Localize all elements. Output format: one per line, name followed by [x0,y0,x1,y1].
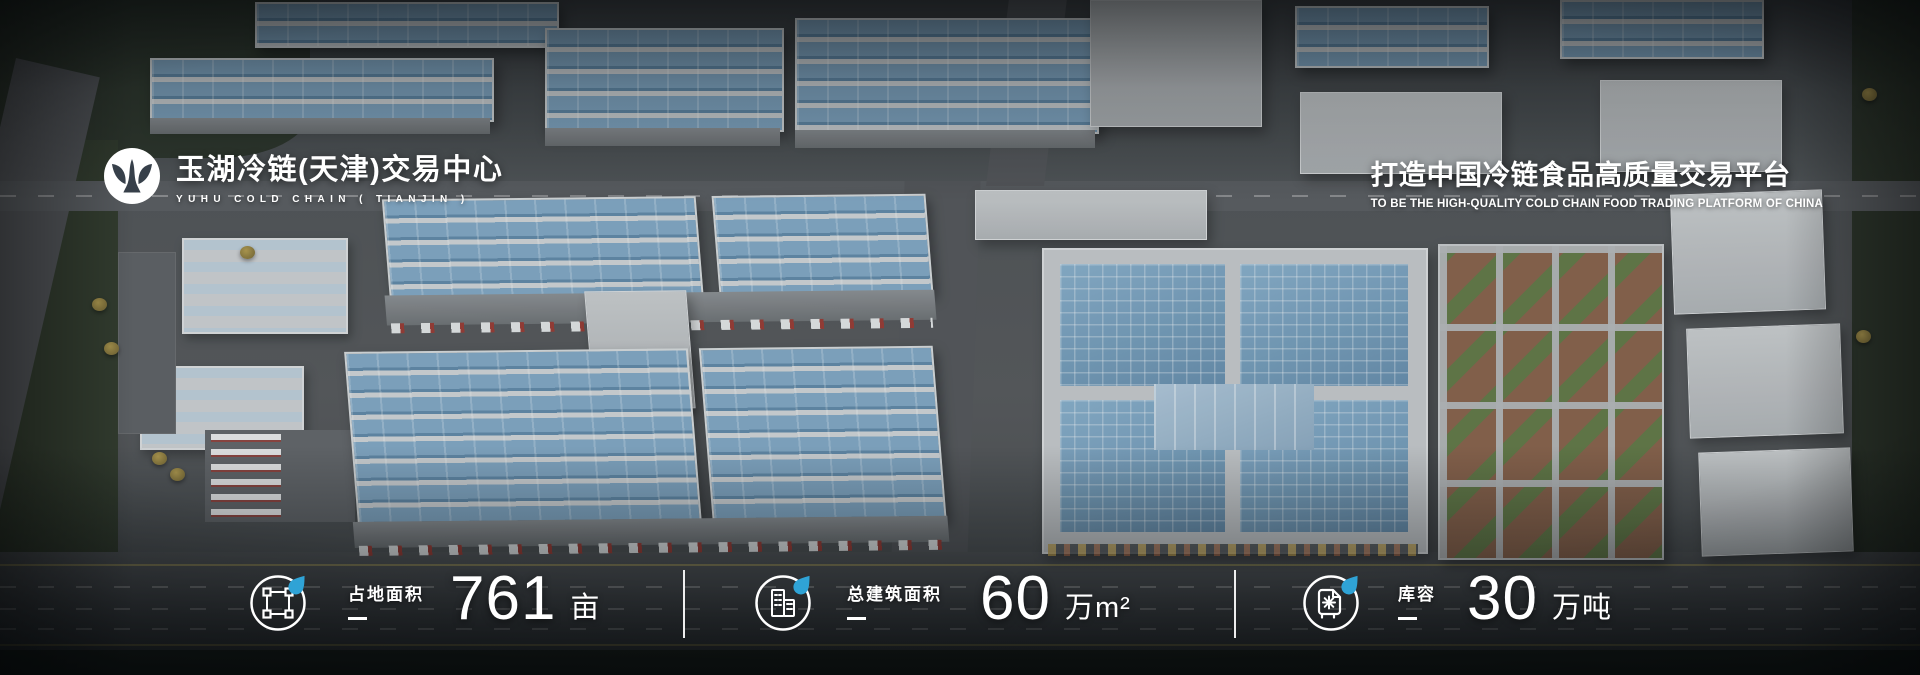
brand-title-cn: 玉湖冷链(天津)交易中心 [176,146,503,188]
stat-value: 761 [450,572,556,625]
yuhu-logo-icon [103,147,161,205]
slogan-title-cn: 打造中国冷链食品高质量交易平台 [1371,152,1823,192]
slogan-block: 打造中国冷链食品高质量交易平台 TO BE THE HIGH-QUALITY C… [1371,152,1823,210]
loading-dock [150,118,490,134]
storage-capacity-icon [1301,573,1361,633]
solar-roof [1240,264,1408,386]
stat-value-row: 30 万吨 [1467,572,1612,625]
stat-unit: 万吨 [1552,594,1612,623]
yellow-tree [92,298,107,311]
yellow-tree [1856,330,1871,343]
slogan-subtitle-en: TO BE THE HIGH-QUALITY COLD CHAIN FOOD T… [1371,198,1823,210]
yellow-tree [1862,88,1877,101]
stat-dash [1398,617,1417,620]
warehouse [975,190,1207,240]
skylight [1154,384,1314,450]
office-building [182,238,348,334]
stat-unit: 万m² [1065,594,1131,623]
solar-roof [1060,264,1225,386]
stat-value-row: 60 万m² [980,572,1131,625]
warehouse [545,28,784,132]
yellow-tree [104,342,119,355]
stat-label-col: 占地面积 [348,580,424,620]
parked-trucks [211,434,281,518]
land-area-icon [248,573,308,633]
warehouse [382,196,704,299]
gross-floor-area-icon [753,573,813,633]
stat-dash [847,617,866,620]
truck-yard [205,430,355,522]
stat-divider [1234,570,1236,638]
hero-banner: H [0,0,1920,675]
loading-dock [795,130,1095,148]
stat-label: 库容 [1398,580,1436,605]
warehouse [795,18,1099,134]
stat-unit: 亩 [570,594,600,623]
stat-label-col: 库容 [1398,580,1436,620]
stat-value: 30 [1467,572,1538,625]
droplet-icon [1338,573,1361,597]
stat-value: 60 [980,572,1051,625]
retail-strip [1048,544,1418,556]
yellow-tree [152,452,167,465]
yellow-tree [170,468,185,481]
stat-label: 占地面积 [348,580,424,605]
warehouse [1295,6,1489,68]
stat-label: 总建筑面积 [847,580,942,605]
warehouse [1698,447,1854,556]
warehouse [255,2,559,48]
stat-dash [348,617,367,620]
brand-titles: 玉湖冷链(天津)交易中心 YUHU COLD CHAIN ( TIANJIN ) [176,146,503,205]
warehouse [1090,0,1262,127]
warehouse [712,194,934,296]
yellow-tree [240,246,255,259]
brand-block: 玉湖冷链(天津)交易中心 YUHU COLD CHAIN ( TIANJIN ) [103,146,503,205]
townhouse-cluster [1438,244,1664,560]
warehouse [344,348,702,526]
droplet-icon [790,573,813,597]
stat-label-col: 总建筑面积 [847,580,942,620]
dock-trucks [359,540,946,556]
stat-divider [683,570,685,638]
warehouse [699,346,947,522]
stat-value-row: 761 亩 [450,572,600,625]
warehouse [1560,0,1764,59]
warehouse [150,58,494,122]
warehouse [1686,323,1844,438]
loading-dock [545,128,780,146]
brand-title-en: YUHU COLD CHAIN ( TIANJIN ) [176,194,503,205]
trade-center-building [1042,248,1428,554]
parking-lot [118,252,176,434]
droplet-icon [285,573,308,597]
loading-dock [353,516,950,548]
